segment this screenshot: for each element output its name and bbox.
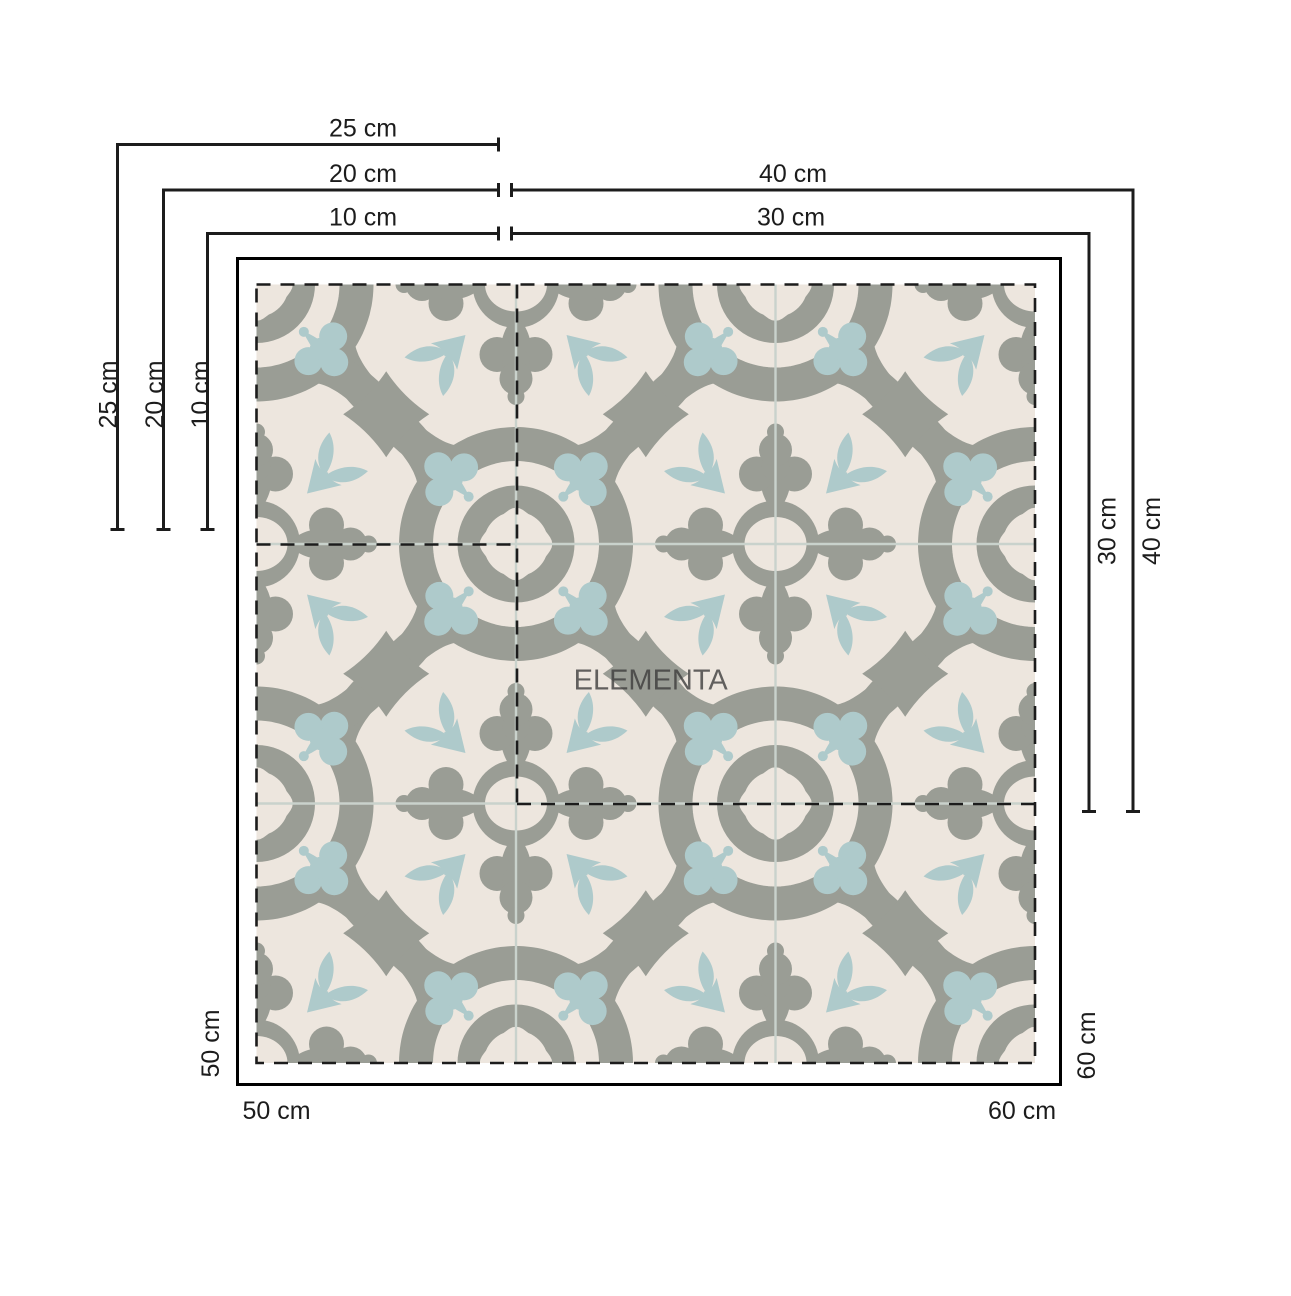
svg-text:10 cm: 10 cm bbox=[187, 360, 215, 428]
svg-text:25 cm: 25 cm bbox=[95, 360, 123, 428]
svg-text:40 cm: 40 cm bbox=[1138, 497, 1166, 565]
svg-text:60 cm: 60 cm bbox=[1073, 1011, 1101, 1079]
svg-text:60 cm: 60 cm bbox=[988, 1097, 1056, 1125]
svg-text:20 cm: 20 cm bbox=[329, 160, 397, 188]
svg-text:30 cm: 30 cm bbox=[757, 204, 825, 232]
svg-text:40 cm: 40 cm bbox=[759, 160, 827, 188]
svg-text:50 cm: 50 cm bbox=[242, 1097, 310, 1125]
svg-text:ELEMENTA: ELEMENTA bbox=[574, 664, 729, 696]
svg-text:50 cm: 50 cm bbox=[197, 1009, 225, 1077]
svg-text:20 cm: 20 cm bbox=[141, 360, 169, 428]
svg-text:30 cm: 30 cm bbox=[1094, 497, 1122, 565]
svg-text:25 cm: 25 cm bbox=[329, 115, 397, 143]
svg-text:10 cm: 10 cm bbox=[329, 204, 397, 232]
